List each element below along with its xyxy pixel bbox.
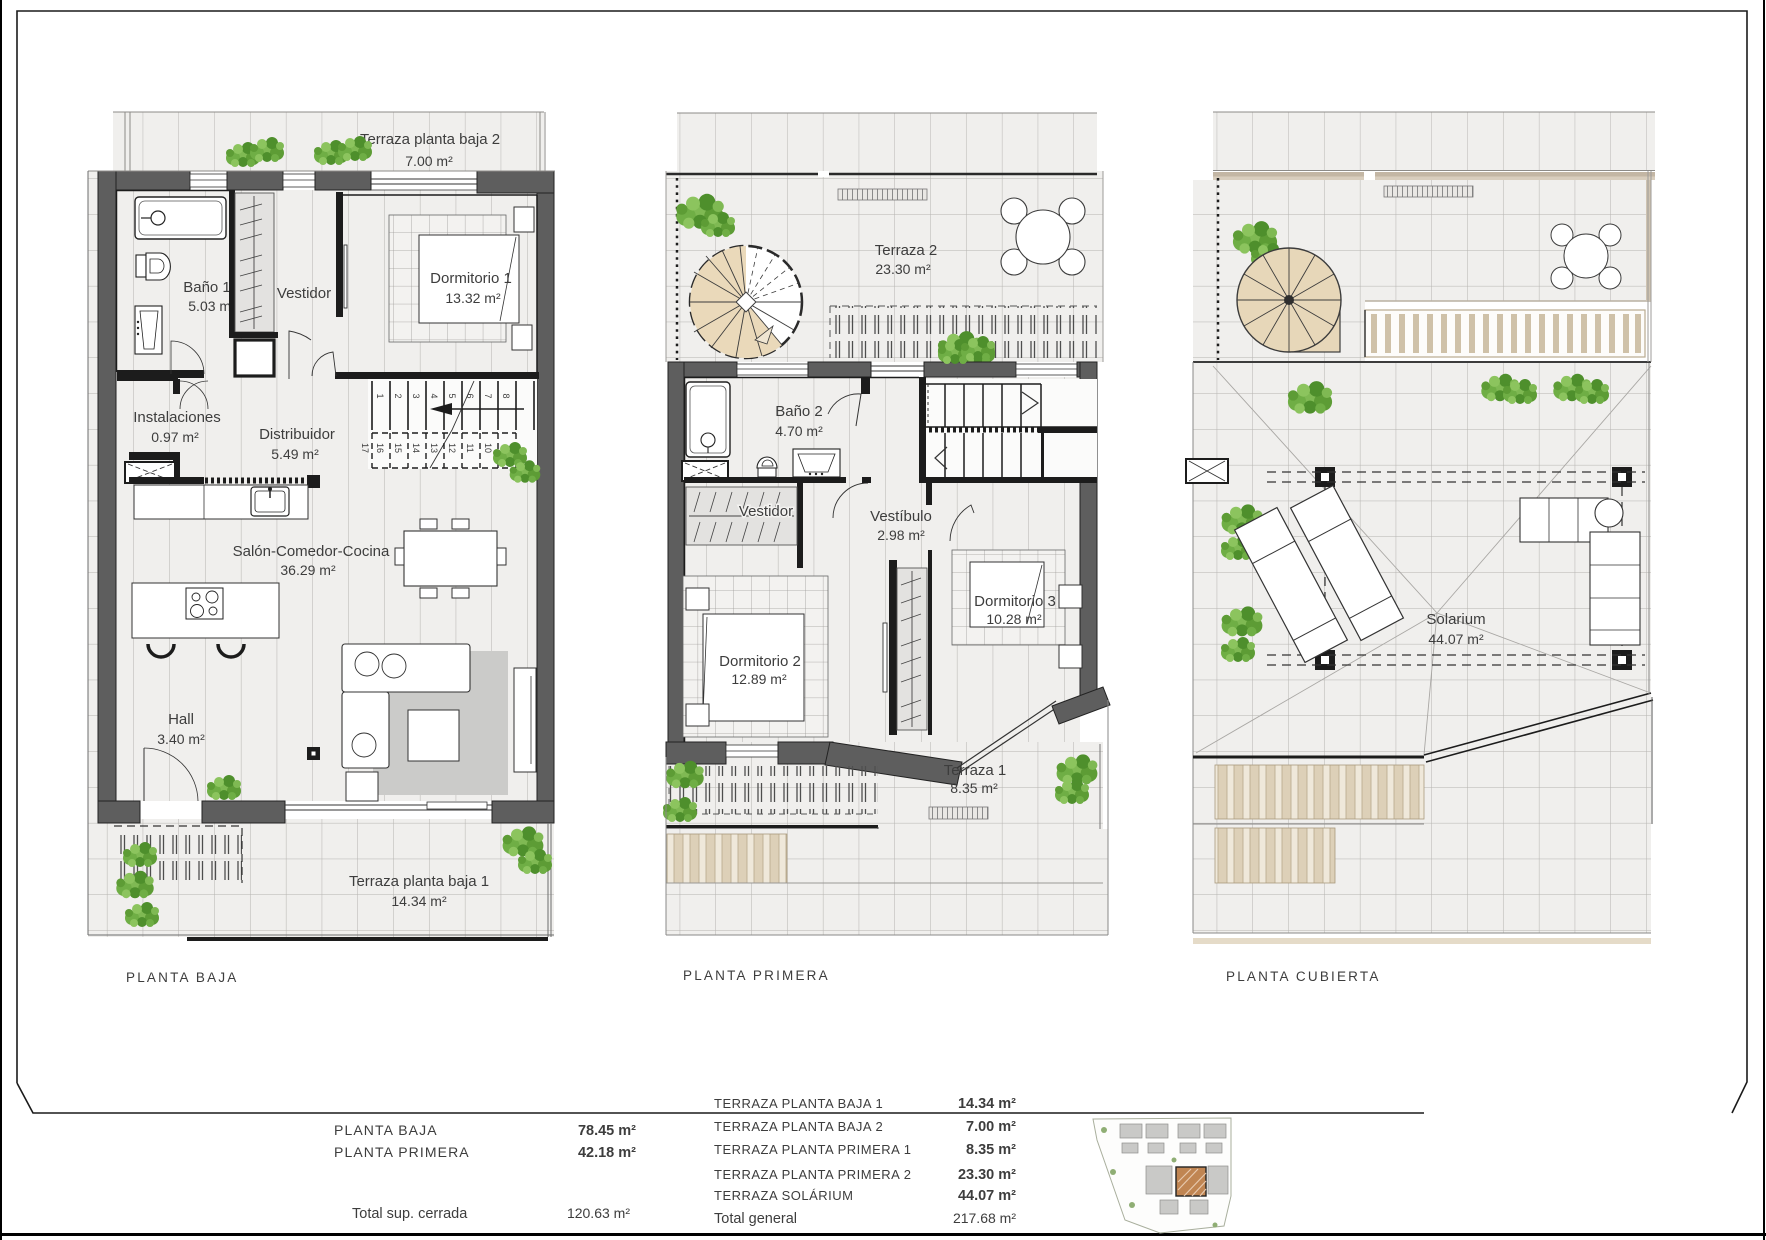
svg-text:5: 5 xyxy=(447,393,457,398)
svg-text:14.34 m²: 14.34 m² xyxy=(958,1096,1016,1112)
svg-text:4: 4 xyxy=(429,393,439,398)
svg-text:TERRAZA PLANTA BAJA 1: TERRAZA PLANTA BAJA 1 xyxy=(714,1096,883,1111)
svg-text:Hall: Hall xyxy=(168,711,194,728)
svg-text:44.07 m²: 44.07 m² xyxy=(958,1188,1016,1204)
svg-text:15: 15 xyxy=(393,443,403,453)
svg-text:Solarium: Solarium xyxy=(1426,611,1485,628)
svg-text:44.07 m²: 44.07 m² xyxy=(1428,631,1484,647)
svg-text:5.49 m²: 5.49 m² xyxy=(271,446,319,462)
svg-text:14.34 m²: 14.34 m² xyxy=(391,893,447,909)
svg-text:8.35 m²: 8.35 m² xyxy=(966,1142,1016,1158)
svg-text:5.03 m²: 5.03 m² xyxy=(188,298,236,314)
svg-text:Dormitorio 1: Dormitorio 1 xyxy=(430,270,512,287)
svg-text:PLANTA PRIMERA: PLANTA PRIMERA xyxy=(683,968,830,983)
svg-text:23.30 m²: 23.30 m² xyxy=(958,1167,1016,1183)
svg-text:2.98 m²: 2.98 m² xyxy=(877,527,925,543)
svg-text:7: 7 xyxy=(483,393,493,398)
svg-text:14: 14 xyxy=(411,443,421,453)
svg-text:78.45 m²: 78.45 m² xyxy=(578,1123,636,1139)
svg-text:TERRAZA PLANTA BAJA 2: TERRAZA PLANTA BAJA 2 xyxy=(714,1119,883,1134)
svg-text:10.28 m²: 10.28 m² xyxy=(986,611,1042,627)
svg-text:TERRAZA PLANTA PRIMERA 2: TERRAZA PLANTA PRIMERA 2 xyxy=(714,1167,911,1182)
svg-text:Dormitorio 3: Dormitorio 3 xyxy=(974,593,1056,610)
svg-text:12: 12 xyxy=(447,443,457,453)
svg-text:17: 17 xyxy=(360,443,370,453)
svg-text:13.32 m²: 13.32 m² xyxy=(445,290,501,306)
svg-text:217.68 m²: 217.68 m² xyxy=(953,1210,1016,1226)
svg-text:Salón-Comedor-Cocina: Salón-Comedor-Cocina xyxy=(233,543,390,560)
svg-text:2: 2 xyxy=(393,393,403,398)
svg-text:Terraza planta baja 2: Terraza planta baja 2 xyxy=(360,131,500,148)
svg-text:8.35 m²: 8.35 m² xyxy=(950,780,998,796)
svg-text:TERRAZA PLANTA PRIMERA 1: TERRAZA PLANTA PRIMERA 1 xyxy=(714,1142,911,1157)
svg-text:Total sup. cerrada: Total sup. cerrada xyxy=(352,1206,468,1222)
svg-text:7.00 m²: 7.00 m² xyxy=(405,153,453,169)
svg-text:36.29 m²: 36.29 m² xyxy=(280,562,336,578)
svg-text:12.89 m²: 12.89 m² xyxy=(731,671,787,687)
svg-text:Terraza planta baja 1: Terraza planta baja 1 xyxy=(349,873,489,890)
svg-text:PLANTA BAJA: PLANTA BAJA xyxy=(126,970,238,985)
svg-text:Terraza 2: Terraza 2 xyxy=(875,242,938,259)
svg-text:1: 1 xyxy=(375,393,385,398)
svg-text:PLANTA PRIMERA: PLANTA PRIMERA xyxy=(334,1144,470,1160)
svg-text:PLANTA BAJA: PLANTA BAJA xyxy=(334,1122,438,1138)
svg-text:3: 3 xyxy=(411,393,421,398)
svg-text:42.18 m²: 42.18 m² xyxy=(578,1145,636,1161)
svg-text:Vestidor: Vestidor xyxy=(739,503,793,520)
svg-text:TERRAZA SOLÁRIUM: TERRAZA SOLÁRIUM xyxy=(714,1188,853,1203)
svg-text:Total general: Total general xyxy=(714,1211,797,1227)
svg-text:120.63 m²: 120.63 m² xyxy=(567,1205,630,1221)
svg-text:4.70 m²: 4.70 m² xyxy=(775,423,823,439)
svg-text:23.30 m²: 23.30 m² xyxy=(875,261,931,277)
svg-text:Terraza 1: Terraza 1 xyxy=(944,762,1007,779)
svg-text:Vestidor: Vestidor xyxy=(277,285,331,302)
svg-text:Baño 1: Baño 1 xyxy=(183,279,231,296)
svg-text:Distribuidor: Distribuidor xyxy=(259,426,335,443)
svg-text:16: 16 xyxy=(375,443,385,453)
svg-text:11: 11 xyxy=(465,443,475,452)
svg-text:7.00 m²: 7.00 m² xyxy=(966,1119,1016,1135)
svg-text:8: 8 xyxy=(501,393,511,398)
svg-text:Dormitorio 2: Dormitorio 2 xyxy=(719,653,801,670)
svg-text:13: 13 xyxy=(429,443,439,453)
svg-text:10: 10 xyxy=(483,443,493,453)
svg-text:PLANTA CUBIERTA: PLANTA CUBIERTA xyxy=(1226,969,1381,984)
svg-text:0.97 m²: 0.97 m² xyxy=(151,429,199,445)
svg-text:3.40 m²: 3.40 m² xyxy=(157,731,205,747)
svg-text:Vestíbulo: Vestíbulo xyxy=(870,508,932,525)
svg-text:Baño 2: Baño 2 xyxy=(775,403,823,420)
svg-text:Instalaciones: Instalaciones xyxy=(133,409,221,426)
